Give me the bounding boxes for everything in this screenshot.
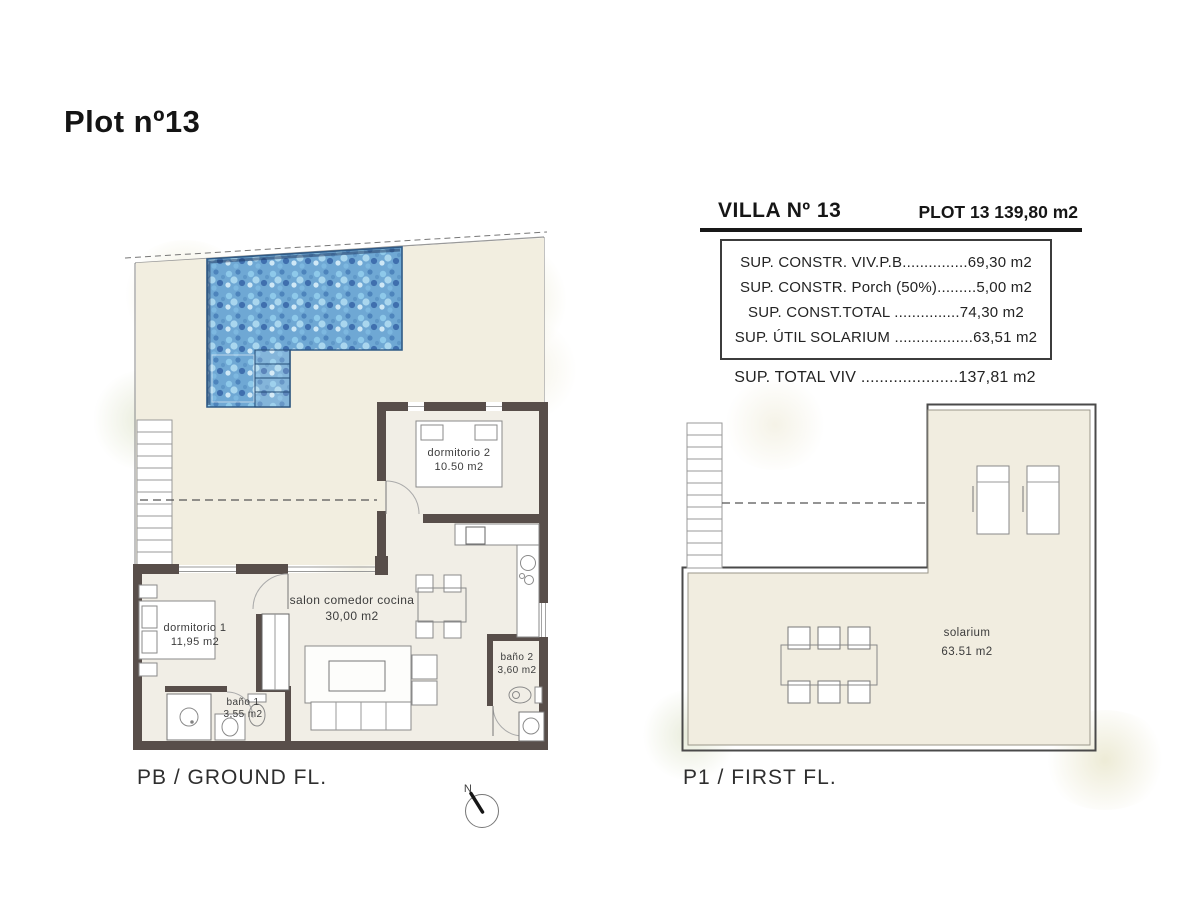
table-total-row: SUP. TOTAL VIV .....................137,… — [720, 369, 1050, 387]
table-row: SUP. CONSTR. Porch (50%).........5,00 m2 — [727, 275, 1045, 300]
table-row: SUP. CONSTR. VIV.P.B...............69,30… — [727, 250, 1045, 275]
area-summary-table: VILLA Nº 13 PLOT 13 139,80 m2 SUP. CONST… — [700, 199, 1082, 387]
solarium-label: solarium — [944, 627, 991, 639]
north-compass: N — [452, 780, 512, 835]
area-rows-box: SUP. CONSTR. VIV.P.B...............69,30… — [720, 239, 1052, 360]
bano1-label: baño 1 — [227, 697, 260, 708]
table-header: VILLA Nº 13 PLOT 13 139,80 m2 — [700, 199, 1082, 232]
ground-floor-caption: PB / GROUND FL. — [137, 766, 327, 790]
solarium-floor — [688, 410, 1090, 745]
row-value: 74,30 m2 — [960, 300, 1024, 325]
solarium-area: 63.51 m2 — [941, 646, 992, 658]
compass-needle — [471, 794, 483, 813]
row-leader: ..................... — [861, 369, 959, 386]
dormitorio1-area: 11,95 m2 — [171, 636, 219, 648]
salon-label: salon comedor cocina — [290, 593, 415, 607]
row-leader: .................. — [894, 325, 973, 350]
floor-plan-sheet: Plot nº13 VILLA Nº 13 PLOT 13 139,80 m2 … — [0, 0, 1200, 900]
row-leader: ............... — [902, 250, 968, 275]
villa-number: VILLA Nº 13 — [718, 199, 841, 223]
table-row: SUP. ÚTIL SOLARIUM ..................63,… — [727, 325, 1045, 350]
row-label: SUP. ÚTIL SOLARIUM — [735, 325, 895, 350]
north-label: N — [464, 783, 472, 795]
row-leader: ......... — [937, 275, 976, 300]
row-value: 5,00 m2 — [976, 275, 1032, 300]
page-title: Plot nº13 — [64, 104, 200, 140]
row-value: 63,51 m2 — [973, 325, 1037, 350]
table-row: SUP. CONST.TOTAL ...............74,30 m2 — [727, 300, 1045, 325]
bano2-label: baño 2 — [501, 652, 534, 663]
row-value: 137,81 m2 — [958, 369, 1035, 386]
salon-area: 30,00 m2 — [325, 609, 378, 623]
row-label: SUP. CONSTR. VIV.P.B — [740, 250, 902, 275]
dormitorio2-label: dormitorio 2 — [428, 447, 491, 459]
bano1-area: 3,55 m2 — [224, 709, 263, 720]
pool-steps — [255, 350, 290, 407]
row-label: SUP. CONST.TOTAL — [748, 300, 894, 325]
row-label: SUP. TOTAL VIV — [734, 369, 861, 386]
dormitorio1-label: dormitorio 1 — [164, 622, 227, 634]
row-value: 69,30 m2 — [968, 250, 1032, 275]
bano2-area: 3,60 m2 — [498, 665, 537, 676]
stairs — [687, 423, 722, 568]
first-floor-caption: P1 / FIRST FL. — [683, 766, 837, 790]
ground-floor-plan: dormitorio 2 10.50 m2 dormitorio 1 11,95… — [115, 225, 570, 765]
row-leader: ............... — [894, 300, 960, 325]
exterior-stairs — [137, 420, 172, 565]
row-label: SUP. CONSTR. Porch (50%) — [740, 275, 937, 300]
dormitorio2-area: 10.50 m2 — [434, 461, 483, 473]
plot-size: PLOT 13 139,80 m2 — [918, 202, 1078, 223]
first-floor-plan: solarium 63.51 m2 — [675, 398, 1105, 763]
